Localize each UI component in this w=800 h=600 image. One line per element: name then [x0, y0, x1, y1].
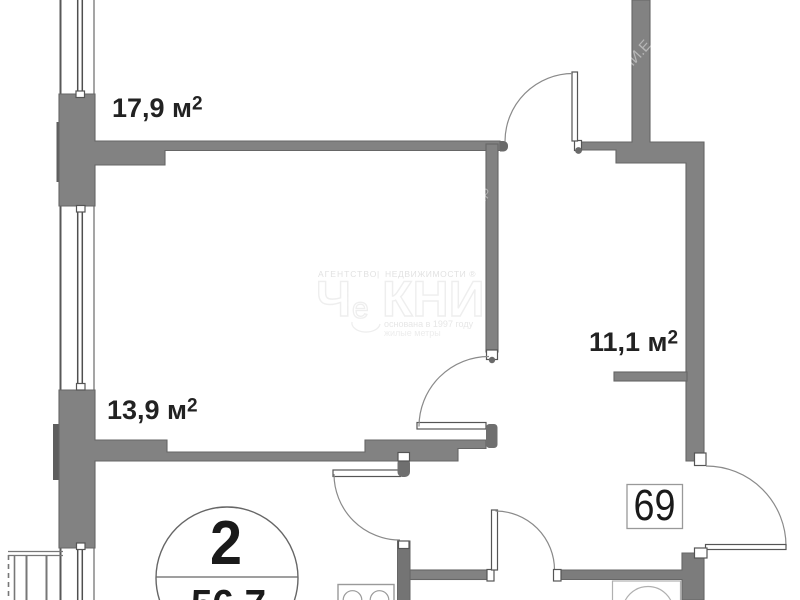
- svg-text:2: 2: [210, 509, 242, 578]
- svg-text:Ч: Ч: [316, 271, 351, 327]
- svg-text:17,9 м2: 17,9 м2: [112, 93, 203, 123]
- svg-text:69: 69: [634, 481, 676, 530]
- svg-text:жилые метры: жилые метры: [384, 328, 441, 338]
- svg-text:е: е: [352, 292, 369, 325]
- svg-text:11,1 м2: 11,1 м2: [589, 327, 678, 357]
- svg-text:56,7: 56,7: [191, 583, 266, 600]
- svg-text:13,9 м2: 13,9 м2: [107, 395, 198, 425]
- svg-text:|: |: [377, 269, 379, 279]
